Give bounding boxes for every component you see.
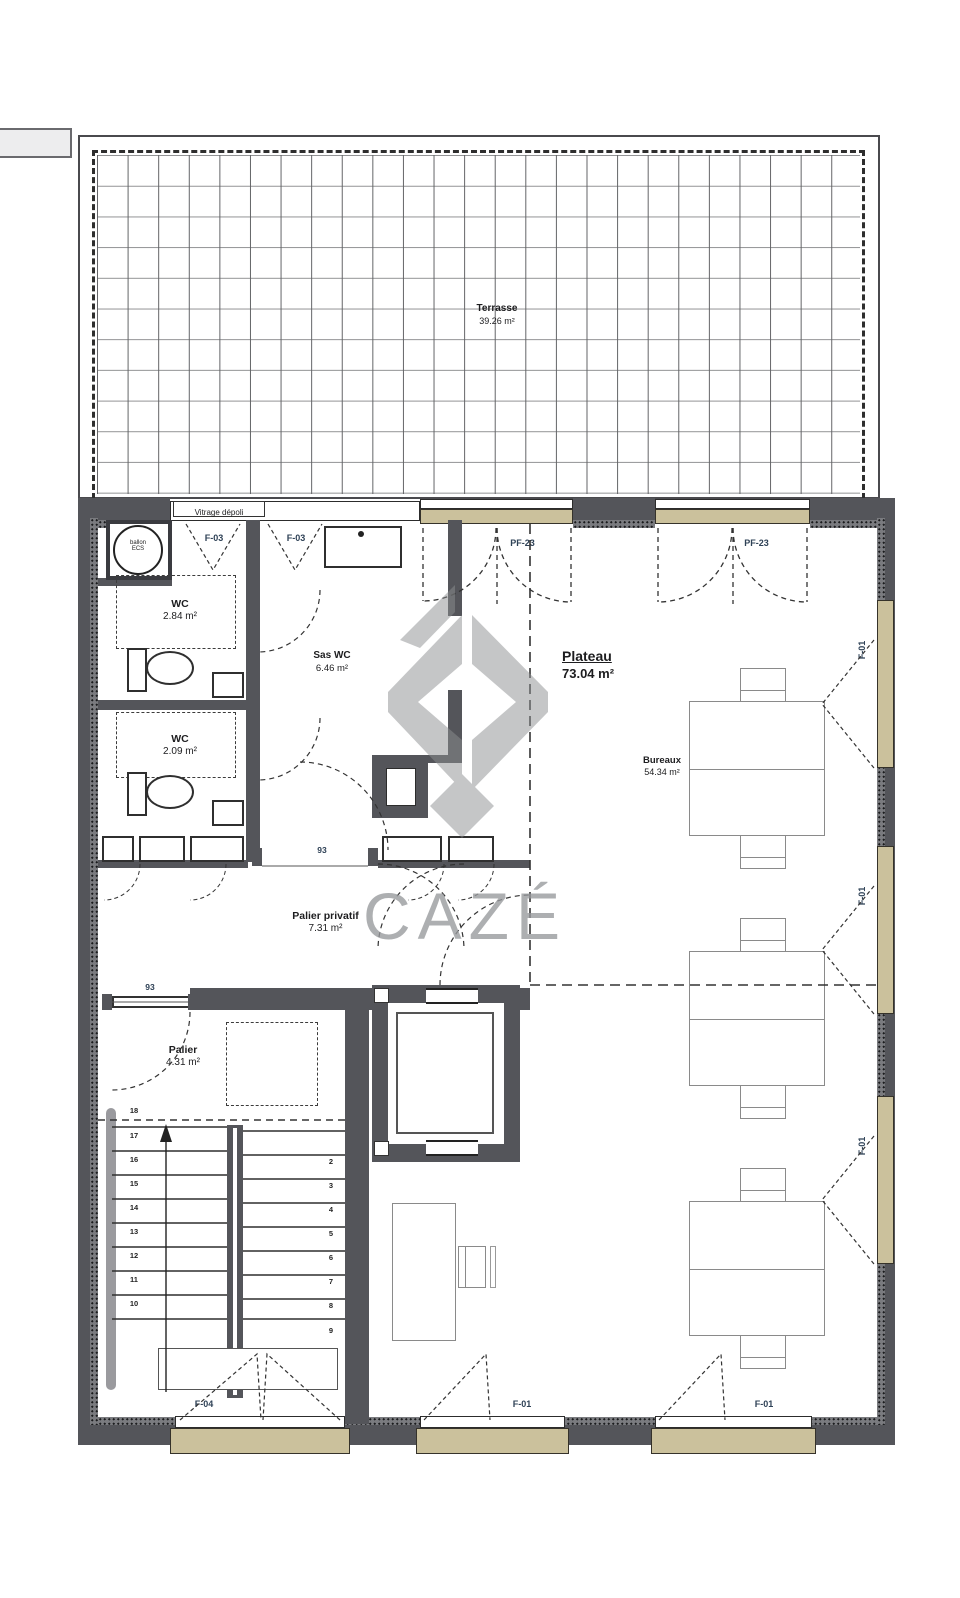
chair-cluster3-bottom (740, 1335, 786, 1369)
watermark-logo-right-chevron (472, 615, 548, 790)
window-f04-frame (175, 1416, 345, 1428)
sas-label: Sas WC 6.46 m² (282, 650, 382, 674)
label-pf23-1: PF-23 (495, 538, 550, 548)
stair-num-left-17: 17 (125, 1131, 143, 1140)
window-f01-bottom-1 (416, 1428, 569, 1454)
dim-93-sas: 93 (307, 845, 337, 855)
elevator-cabin (396, 1012, 494, 1134)
chair-cluster1-bottom (740, 835, 786, 869)
wc2-name: WC (130, 733, 230, 746)
water-heater-label-2: ECS (115, 546, 161, 552)
stair-num-right-3: 3 (322, 1181, 340, 1190)
hatch-top-mid (573, 520, 655, 528)
stair-num-right-9: 9 (322, 1326, 340, 1335)
stair-direction-arrowhead (160, 1124, 172, 1142)
elevator-corner-bottom (374, 1141, 389, 1156)
window-f01-right-2 (877, 846, 894, 1014)
hatch-top-right (810, 520, 877, 528)
wall-sas-plateau-b (448, 690, 462, 762)
palier-name: Palier (133, 1044, 233, 1057)
elevator-door-top (426, 988, 478, 1004)
palier-label: Palier 4.31 m² (133, 1044, 233, 1070)
label-f04: F-04 (179, 1399, 229, 1409)
water-heater-circle: ballon ECS (113, 525, 163, 575)
window-f01-right-1 (877, 600, 894, 768)
wc2-area: 2.09 m² (130, 746, 230, 759)
stair-num-left-16: 16 (125, 1155, 143, 1164)
window-f01-right-3 (877, 1096, 894, 1264)
terrace-name: Terrasse (437, 303, 557, 316)
stair-num-left-15: 15 (125, 1179, 143, 1188)
handbasin-1 (212, 672, 244, 698)
palier-dashed-hatch (226, 1022, 318, 1106)
stair-num-left-14: 14 (125, 1203, 143, 1212)
stair-num-right-5: 5 (322, 1229, 340, 1238)
plateau-area: 73.04 m² (562, 666, 692, 682)
stair-num-left-13: 13 (125, 1227, 143, 1236)
wc1-door-swing (258, 590, 320, 652)
entry-door-jamb-2 (188, 994, 202, 1010)
cabinet-1 (102, 836, 134, 862)
frosted-glazing-label: Vitrage dépoli (195, 508, 244, 517)
wc1-name: WC (130, 598, 230, 611)
desk-cluster-2 (689, 951, 825, 1086)
door-pf23-1-frame (420, 499, 573, 509)
door-pf23-2-frame (655, 499, 810, 509)
wc2-label: WC 2.09 m² (130, 733, 230, 759)
toilet-2-tank (127, 772, 147, 816)
window-f01-bottom-2-frame (655, 1416, 812, 1428)
stair-num-left-10: 10 (125, 1299, 143, 1308)
wall-duct-link (428, 755, 462, 763)
toilet-1-bowl (146, 651, 194, 685)
elevator-door-bottom (426, 1140, 478, 1156)
watermark-logo-diamond (430, 774, 494, 838)
terrace-area: 39.26 m² (437, 316, 557, 327)
desk-divider (690, 1269, 824, 1270)
label-f01-bottom-2: F-01 (739, 1399, 789, 1409)
frosted-glazing-labelbox: Vitrage dépoli (173, 501, 265, 517)
stair-handrail (106, 1108, 116, 1390)
desk-cluster-3 (689, 1201, 825, 1336)
window-f01-bottom-2 (651, 1428, 816, 1454)
stair-num-right-8: 8 (322, 1301, 340, 1310)
palier-area: 4.31 m² (133, 1057, 233, 1070)
floor-plan: Terrasse 39.26 m² Vitrage dépoli PF-23 P… (0, 0, 960, 1598)
hatch-left (90, 518, 98, 1425)
cabinet-3 (190, 836, 244, 862)
handbasin-2 (212, 800, 244, 826)
bureaux-area: 54.34 m² (612, 767, 712, 778)
stair-num-right-2: 2 (322, 1157, 340, 1166)
cabinet-2 (139, 836, 185, 862)
label-f03-1: F-03 (189, 533, 239, 543)
sas-name: Sas WC (282, 650, 382, 663)
label-f03-2: F-03 (271, 533, 321, 543)
cabinet-4 (382, 836, 442, 862)
entry-door-jamb-1 (102, 994, 112, 1010)
stair-num-left-18: 18 (125, 1106, 143, 1115)
adjacent-structure (0, 128, 72, 158)
label-f01-right-3: F-01 (857, 1126, 867, 1166)
wc1-area: 2.84 m² (130, 611, 230, 624)
chair-cluster2-bottom (740, 1085, 786, 1119)
elevator-corner-top (374, 988, 389, 1003)
wall-wc-divider (98, 700, 246, 710)
watermark-text: CAZÉ (330, 878, 600, 954)
wall-stair-right (345, 1010, 369, 1424)
jamb-sas-right (368, 848, 378, 866)
cabinet-5 (448, 836, 494, 862)
dim-93-palier: 93 (135, 982, 165, 992)
door-pf23-1 (420, 509, 573, 524)
stair-num-right-7: 7 (322, 1277, 340, 1286)
label-f01-right-2: F-01 (857, 876, 867, 916)
desk-divider (690, 1019, 824, 1020)
toilet-1-tank (127, 648, 147, 692)
window-f01-bottom-1-frame (420, 1416, 565, 1428)
chair-cluster2-top (740, 918, 786, 952)
terrace-label: Terrasse 39.26 m² (437, 303, 557, 327)
window-f04 (170, 1428, 350, 1454)
stair-radiator (158, 1348, 338, 1390)
f03-2-swing (268, 524, 322, 570)
desk-single (392, 1203, 456, 1341)
plateau-label: Plateau 73.04 m² (562, 648, 692, 682)
duct-inner (386, 768, 416, 806)
bureaux-label: Bureaux 54.34 m² (612, 755, 712, 778)
toilet-2-bowl (146, 775, 194, 809)
bureaux-name: Bureaux (612, 755, 712, 767)
chair-single-desk (458, 1246, 486, 1288)
label-pf23-2: PF-23 (729, 538, 784, 548)
chair-cluster1-top (740, 668, 786, 702)
washbasin-faucet (358, 531, 364, 537)
chair-cluster3-top (740, 1168, 786, 1202)
desk-single-screen (490, 1246, 496, 1288)
label-f01-right-1: F-01 (857, 630, 867, 670)
sas-area: 6.46 m² (282, 663, 382, 675)
door-pf23-2 (655, 509, 810, 524)
watermark-logo-top-fold (400, 585, 455, 648)
f03-1-swing (186, 524, 240, 570)
entry-door-leaf (112, 996, 190, 1008)
stair-num-right-6: 6 (322, 1253, 340, 1262)
stair-num-left-12: 12 (125, 1251, 143, 1260)
wc2-door-swing (258, 718, 320, 780)
plateau-name: Plateau (562, 648, 692, 666)
stair-num-right-4: 4 (322, 1205, 340, 1214)
f01-right-swings (822, 640, 874, 1264)
stair-num-left-11: 11 (125, 1275, 143, 1284)
wall-sas-plateau-a (448, 520, 462, 616)
label-f01-bottom-1: F-01 (497, 1399, 547, 1409)
wall-wc-right (246, 520, 260, 862)
wc1-label: WC 2.84 m² (130, 598, 230, 624)
jamb-sas-left (252, 848, 262, 866)
